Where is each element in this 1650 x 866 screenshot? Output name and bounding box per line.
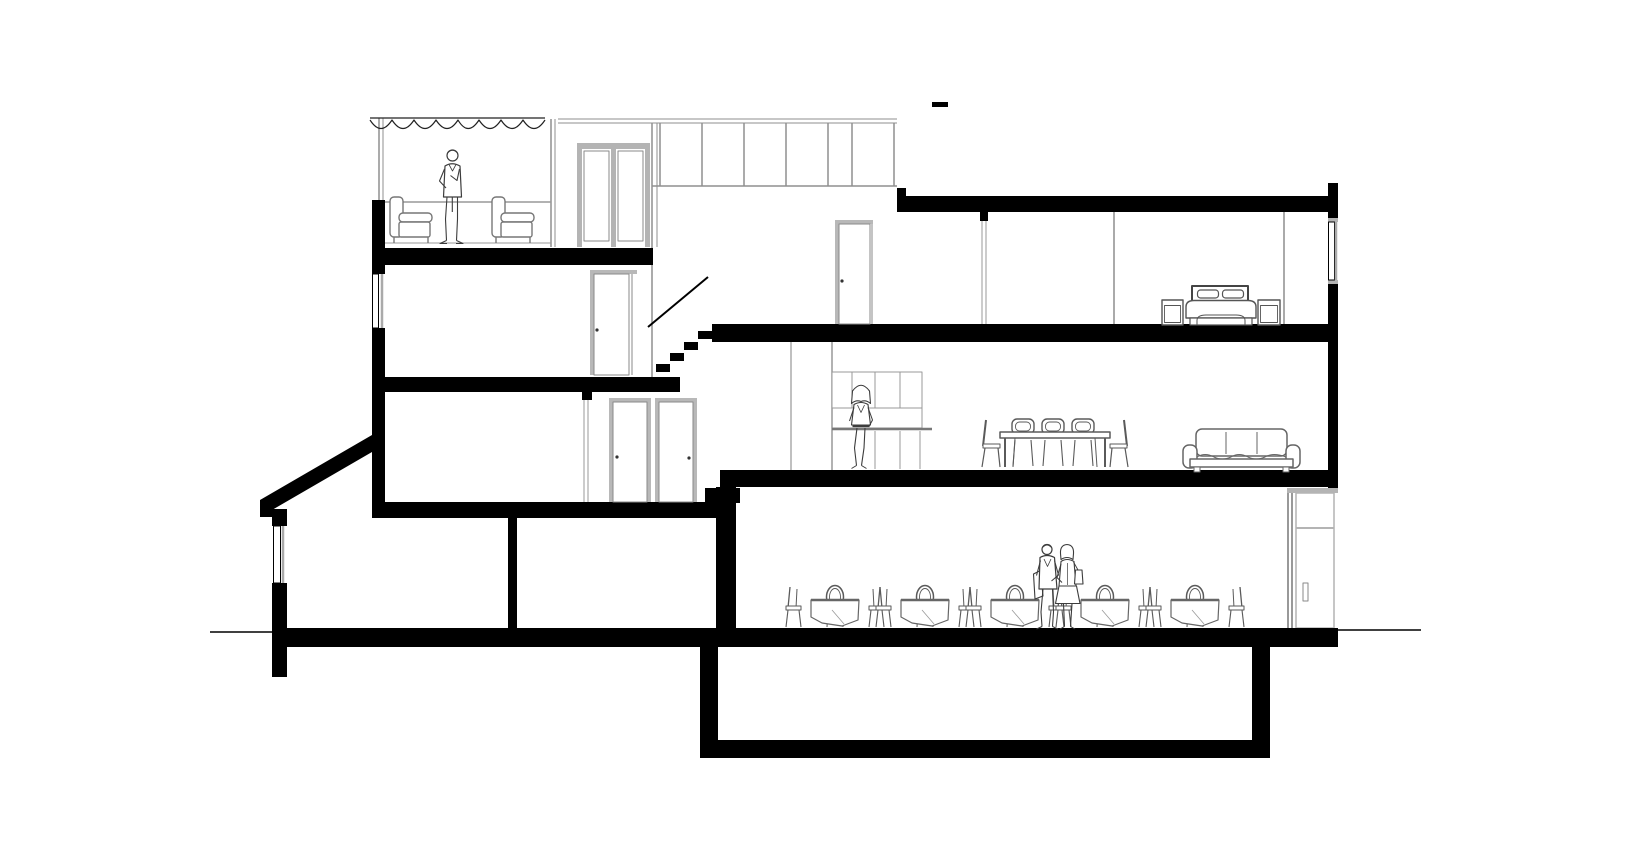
bedroom-door-handle	[840, 279, 843, 282]
kitchen-woman-hair	[852, 385, 871, 403]
terrace-door-panel-right	[618, 151, 643, 241]
cafe-chair-back-post	[976, 589, 977, 608]
left-wall-top	[372, 200, 385, 248]
terrace-door-jamb-left	[577, 143, 582, 247]
level-b-door2-jamb-l	[655, 402, 659, 502]
bed-base	[1190, 318, 1252, 325]
leanto-wall-bottom	[272, 583, 287, 677]
sofa-leg	[1283, 467, 1289, 472]
cafe-chair-seat	[876, 606, 891, 610]
cafe-chair-back-post	[1240, 587, 1242, 608]
armchair-body	[501, 222, 532, 237]
dining-endchair-leg	[1110, 448, 1112, 467]
leanto-wall-top	[272, 509, 287, 526]
dining-endchair-leg	[982, 448, 985, 467]
level-a-door-jamb	[590, 274, 594, 375]
stair-handrail	[648, 277, 708, 327]
level-b-door2-head	[655, 398, 697, 402]
restaurant-table-group-3	[966, 586, 1064, 628]
cafe-chair-back-post	[1148, 587, 1150, 608]
cafe-chair-back-post	[886, 589, 887, 608]
terrace-door-jamb-right	[645, 143, 650, 247]
dining-chair-leg	[1061, 440, 1063, 466]
cafe-chair-back-post	[796, 589, 797, 608]
restaurant-woman-skirt	[1056, 586, 1081, 604]
bedroom-window-sill	[1328, 280, 1338, 284]
stair-tread-1	[698, 331, 712, 339]
cafe-chair-leg	[1049, 610, 1051, 627]
doors-layer	[577, 143, 873, 502]
left-wall-window	[373, 274, 379, 328]
cafe-chair-leg	[966, 610, 968, 627]
cafe-chair-back-post	[788, 587, 790, 608]
terrace-door-head	[577, 143, 650, 149]
cafe-chair-back-post	[878, 587, 880, 608]
section-svg	[0, 0, 1650, 866]
living-floor-slab	[720, 470, 1338, 487]
architectural-section-page	[0, 0, 1650, 866]
dining-chair-leg	[1091, 440, 1093, 466]
armchair-armrest	[399, 213, 432, 222]
level-a-door-handle	[595, 328, 598, 331]
dining-chair-leg	[1073, 440, 1075, 466]
left-middle-slab	[372, 377, 680, 392]
terrace-armchair-2	[492, 197, 534, 243]
dining-chair-back-3	[1072, 419, 1094, 466]
dining-table-leg	[1095, 438, 1097, 467]
bed-pillow-right	[1223, 290, 1244, 298]
armchair-body	[399, 222, 430, 237]
sofa-base	[1190, 459, 1293, 467]
partition-header-stub	[582, 392, 592, 400]
left-lower-slab	[372, 502, 718, 518]
terrace-floor-slab	[372, 248, 653, 265]
terrace-man-legs	[446, 197, 458, 241]
stair-tread-2	[684, 342, 698, 350]
left-wall-sill	[372, 265, 385, 274]
kitchen-mid-band	[832, 408, 922, 428]
right-parapet	[1328, 183, 1338, 196]
cafe-chair-back-post	[873, 589, 874, 608]
dining-chair-leg	[1031, 440, 1033, 466]
sofa-back	[1196, 429, 1287, 456]
windows-layer	[274, 218, 1339, 583]
dining-endchair-back	[983, 420, 986, 446]
dining-endchair-seat	[1110, 444, 1127, 448]
basement-floor-slab	[700, 740, 1270, 758]
roof-upstand-lip	[897, 188, 906, 196]
cafe-chair-leg	[882, 610, 884, 627]
stair-tread-4	[656, 364, 670, 372]
leanto-roof	[260, 435, 372, 517]
level-b-door1-jamb-l	[609, 402, 613, 502]
cafe-chair-leg	[889, 610, 891, 627]
restaurant-table-group-1	[786, 586, 884, 628]
cafe-chair-leg	[972, 610, 974, 627]
level-b-door1-handle	[615, 455, 618, 458]
armchair-armrest	[501, 213, 534, 222]
terrace-door-mullion	[611, 149, 616, 247]
restaurant-table-group-2	[876, 586, 974, 628]
cafe-chair-leg	[876, 610, 878, 627]
awning-scallops	[370, 120, 545, 129]
right-wall-main	[1328, 280, 1338, 488]
bedroom-window	[1329, 222, 1335, 280]
cafe-chair-seat	[786, 606, 801, 610]
dining-endchair-back	[1124, 420, 1127, 446]
main-roof-slab	[897, 196, 1338, 212]
entry-door-pull	[1303, 583, 1308, 601]
dining-table-top	[1000, 432, 1110, 438]
dining-chair-back-2	[1042, 419, 1064, 466]
terrace-man-jacket	[444, 164, 462, 197]
kitchen-woman-feet	[852, 466, 867, 469]
level-a-door-leaf	[594, 274, 629, 375]
level-b-door1-head	[609, 398, 651, 402]
kitchen-woman-torso	[852, 403, 871, 426]
cafe-chair-seat	[1146, 606, 1161, 610]
bed-pillow-left	[1198, 290, 1219, 298]
cafe-chair-back-post	[963, 589, 964, 608]
bedroom-door-leaf	[839, 224, 870, 324]
cafe-chair-leg	[1152, 610, 1154, 627]
stair-tread-3	[670, 353, 684, 361]
ground-floor-slab	[287, 628, 1338, 647]
left-wall-main	[372, 328, 385, 504]
dining-endchair-seat	[983, 444, 1000, 448]
restaurant-man-torso	[1039, 556, 1057, 590]
cafe-chair-leg	[799, 610, 801, 627]
cafe-chair-back-post	[968, 587, 970, 608]
bedroom-door-head	[835, 220, 873, 224]
terrace-door-panel-left	[584, 151, 609, 241]
cafe-chair-leg	[979, 610, 981, 627]
cafe-chair-leg	[786, 610, 788, 627]
restaurant-table-group-5	[1146, 586, 1244, 628]
restaurant-woman-hair	[1060, 545, 1073, 560]
cafe-chair-leg	[1146, 610, 1148, 627]
dining-endchair-leg	[998, 448, 1000, 467]
roof-marker	[932, 102, 948, 107]
level-b-door1-leaf	[613, 402, 647, 502]
restaurant-left-wall	[716, 487, 736, 630]
cafe-chair-leg	[1056, 610, 1058, 627]
cafe-chair-leg	[959, 610, 961, 627]
dining-chair-leg	[1043, 440, 1045, 466]
cafe-chair-leg	[1139, 610, 1141, 627]
restaurant-woman-bag	[1075, 570, 1084, 584]
nightstand-right	[1258, 300, 1280, 325]
bedroom-floor-slab	[712, 324, 1338, 342]
level-b-door1-jamb-r	[647, 402, 651, 502]
dining-endchair-leg	[1125, 448, 1128, 467]
leanto-window	[274, 526, 281, 583]
kitchen-woman-legs	[855, 428, 866, 466]
sofa-leg	[1194, 467, 1200, 472]
kitchen-wall-cabinets	[832, 372, 922, 408]
cafe-chair-leg	[869, 610, 871, 627]
level-b-door2-handle	[687, 456, 690, 459]
cafe-chair-seat	[966, 606, 981, 610]
terrace-armchair-1	[390, 197, 432, 243]
furniture-layer	[832, 286, 1300, 472]
cafe-chair-leg	[1242, 610, 1244, 627]
bedroom-door-jamb	[835, 224, 839, 324]
level-b-door2-leaf	[659, 402, 693, 502]
level-b-door2-jamb-r	[693, 402, 697, 502]
cafe-chair-leg	[1159, 610, 1161, 627]
dining-table-leg	[1013, 438, 1015, 467]
cafe-chair-seat	[1229, 606, 1244, 610]
bedroom-partition-header	[980, 212, 988, 221]
entry-vestibule-frame	[1296, 493, 1334, 628]
gf-interior-wall	[508, 518, 517, 628]
level-a-door-head	[590, 270, 637, 274]
cafe-chair-back-post	[1156, 589, 1157, 608]
dining-chair-back-1	[1012, 419, 1034, 466]
bedroom-window-head	[1328, 218, 1338, 222]
cafe-chair-leg	[1229, 610, 1231, 627]
nightstand-left	[1162, 300, 1183, 325]
cafe-chair-back-post	[1233, 589, 1234, 608]
cafe-chair-back-post	[1143, 589, 1144, 608]
